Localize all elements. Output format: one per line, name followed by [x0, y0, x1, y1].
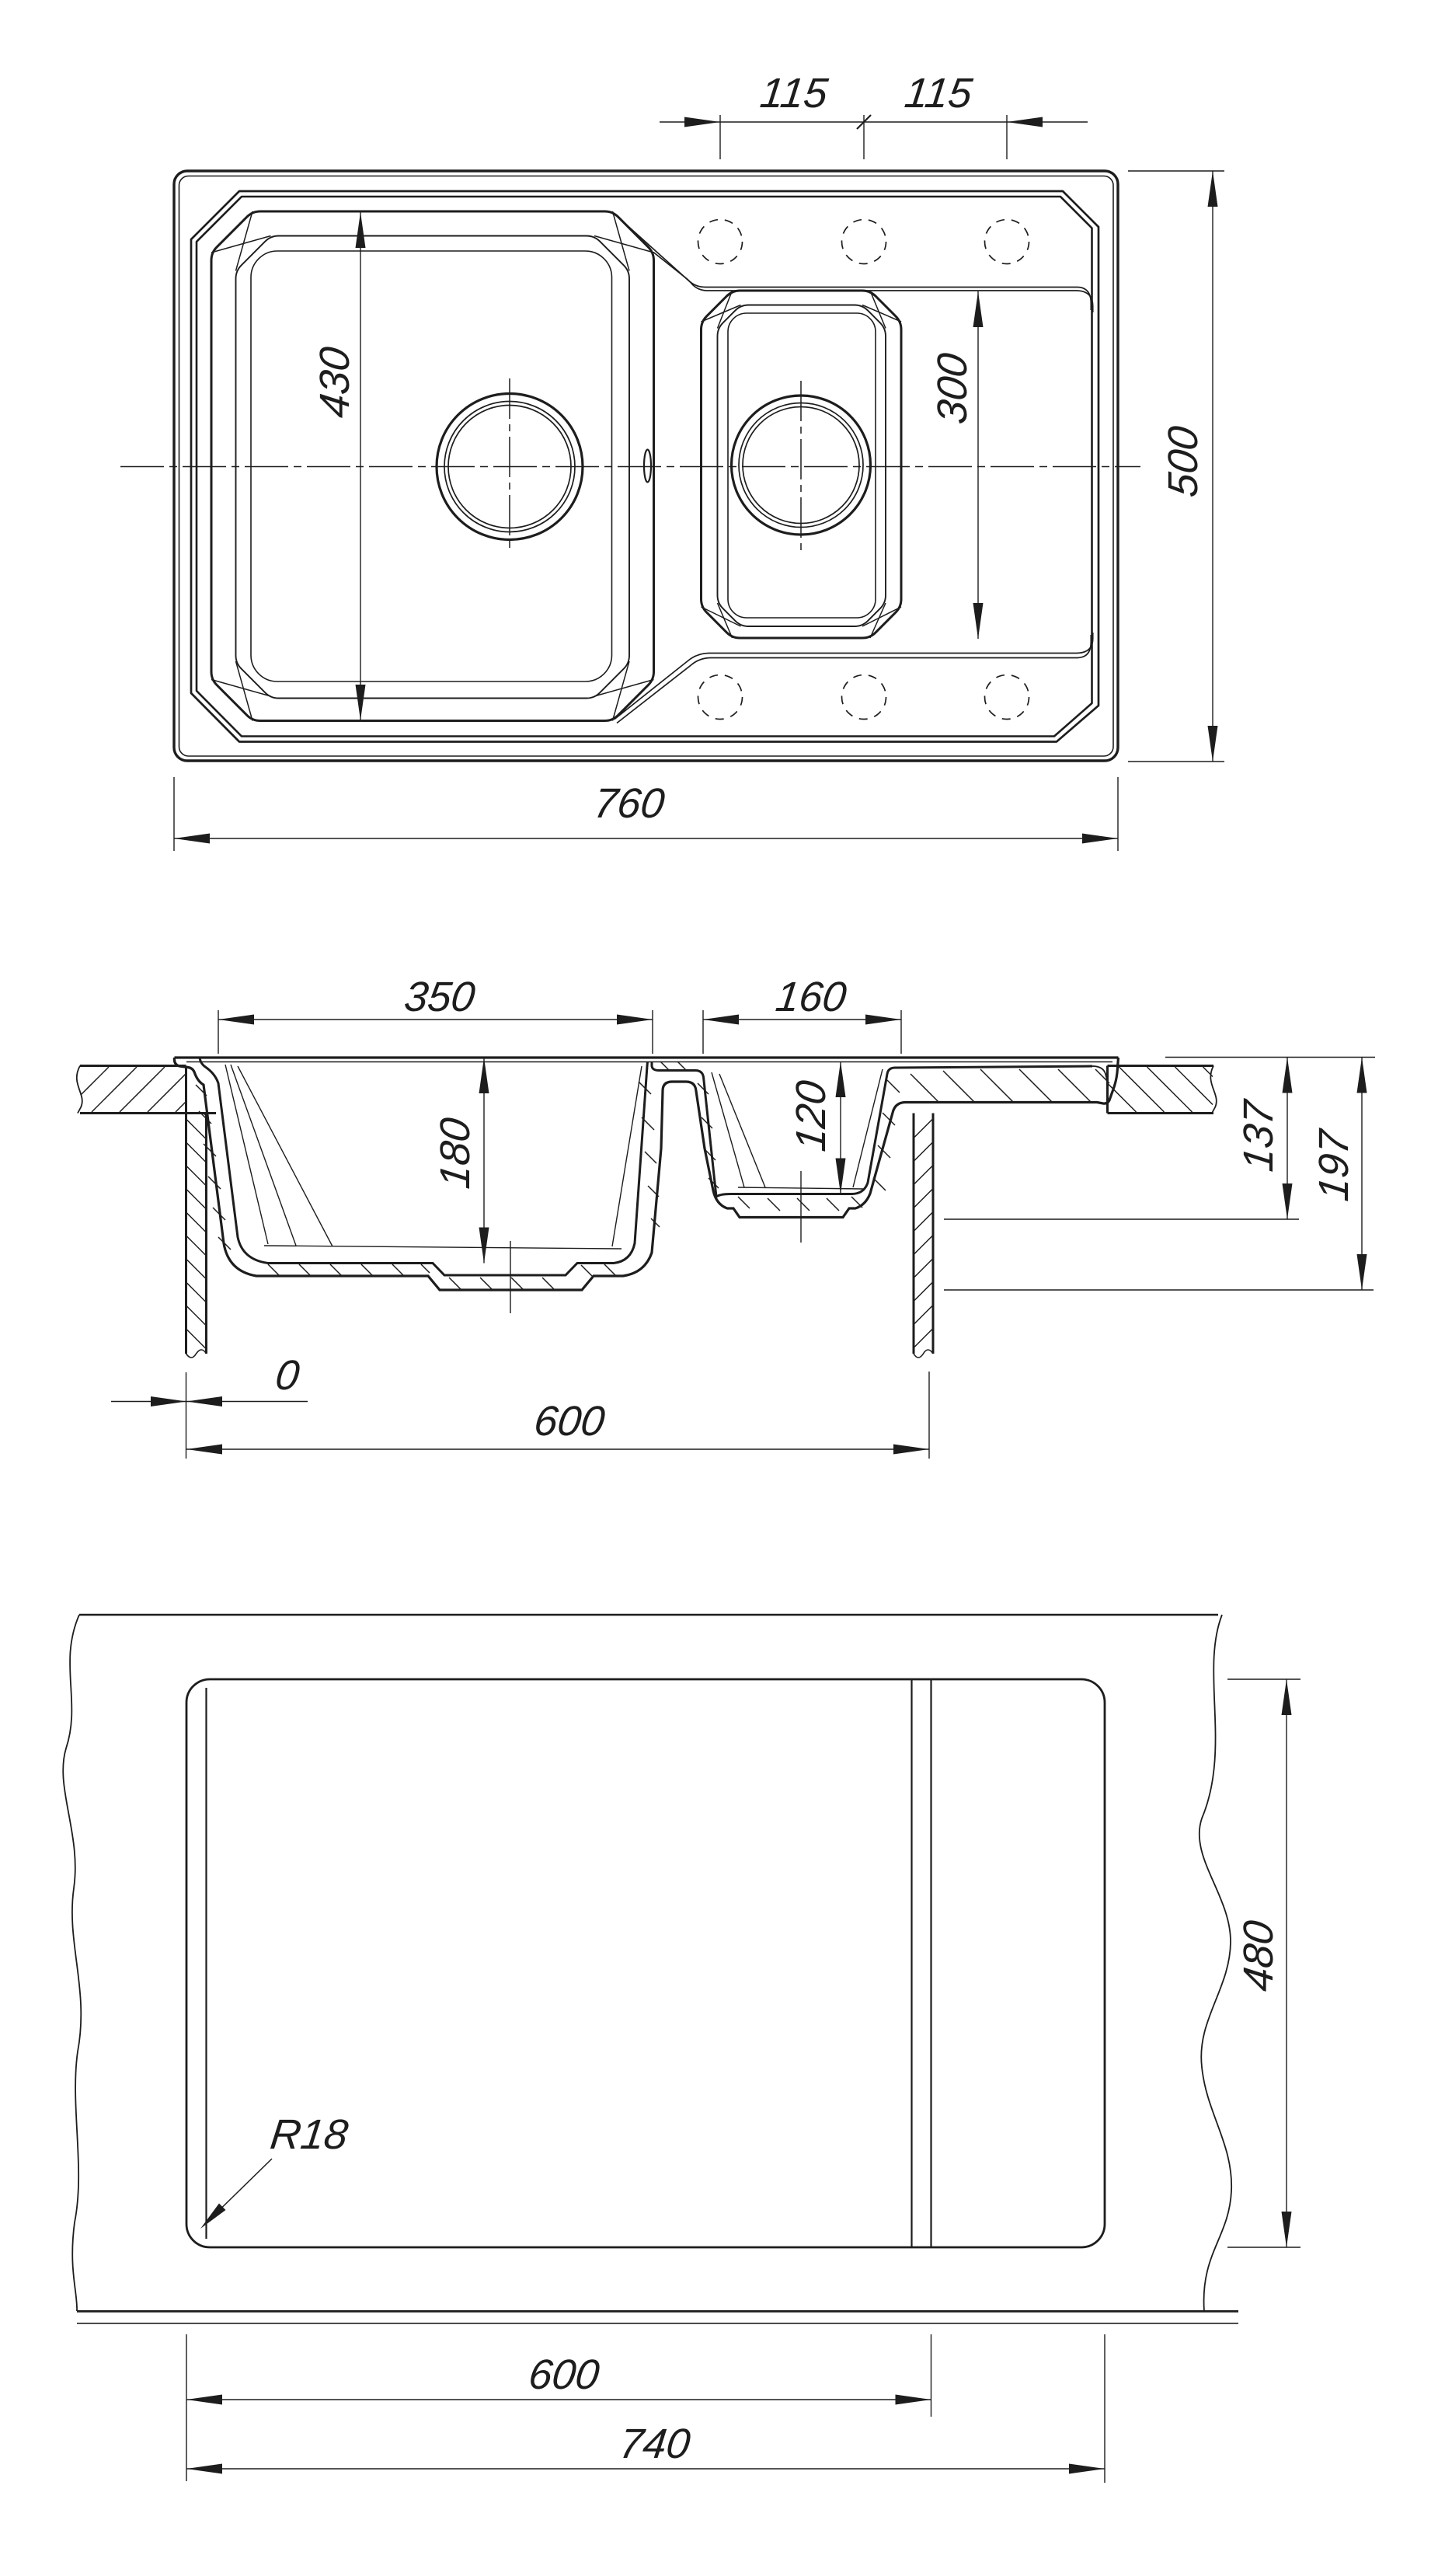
svg-text:600: 600 [526, 2351, 601, 2398]
svg-text:480: 480 [1235, 1918, 1282, 1993]
svg-text:180: 180 [432, 1115, 479, 1190]
svg-text:500: 500 [1160, 424, 1206, 499]
svg-text:600: 600 [531, 1398, 607, 1445]
svg-text:115: 115 [757, 70, 830, 117]
svg-text:160: 160 [773, 974, 848, 1020]
svg-text:300: 300 [929, 350, 976, 426]
svg-text:120: 120 [788, 1078, 834, 1153]
svg-text:760: 760 [591, 780, 667, 827]
svg-text:740: 740 [617, 2421, 692, 2467]
svg-text:350: 350 [402, 974, 477, 1020]
svg-text:430: 430 [312, 344, 358, 420]
svg-text:R18: R18 [268, 2111, 350, 2158]
svg-text:115: 115 [902, 70, 975, 117]
svg-text:197: 197 [1311, 1126, 1357, 1203]
svg-text:137: 137 [1235, 1096, 1282, 1173]
